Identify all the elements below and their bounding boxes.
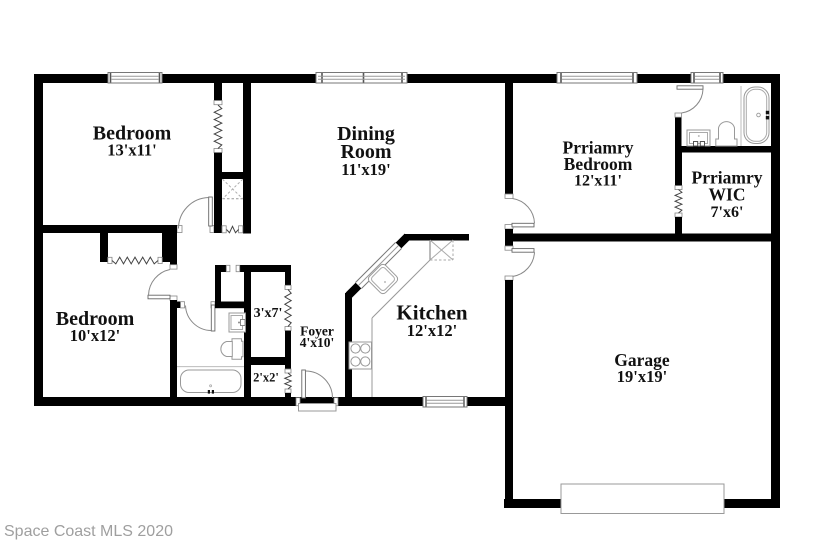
- svg-text:2'x2': 2'x2': [253, 371, 279, 385]
- svg-text:13'x11': 13'x11': [107, 141, 157, 160]
- svg-text:12'x12': 12'x12': [407, 321, 457, 340]
- svg-text:3'x7': 3'x7': [254, 306, 283, 321]
- svg-text:7'x6': 7'x6': [711, 204, 744, 221]
- svg-text:10'x12': 10'x12': [70, 326, 120, 345]
- svg-text:4'x10': 4'x10': [300, 335, 335, 350]
- svg-text:11'x19': 11'x19': [341, 160, 391, 179]
- svg-text:Bedroom: Bedroom: [564, 154, 633, 174]
- svg-text:WIC: WIC: [709, 185, 746, 205]
- svg-text:19'x19': 19'x19': [617, 367, 667, 386]
- svg-text:Space Coast MLS 2020: Space Coast MLS 2020: [4, 523, 173, 540]
- svg-text:12'x11': 12'x11': [574, 173, 622, 190]
